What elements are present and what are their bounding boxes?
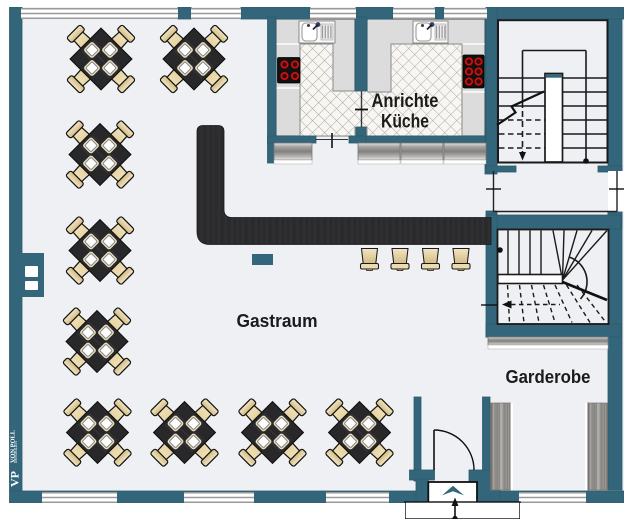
svg-text:VP: VP [8,471,22,487]
svg-text:Küche: Küche [381,112,429,133]
svg-text:Anrichte: Anrichte [372,91,439,112]
svg-text:Gastraum: Gastraum [237,310,318,331]
svg-text:Garderobe: Garderobe [506,366,591,387]
svg-text:IMMOBILIEN: IMMOBILIEN [14,441,18,463]
